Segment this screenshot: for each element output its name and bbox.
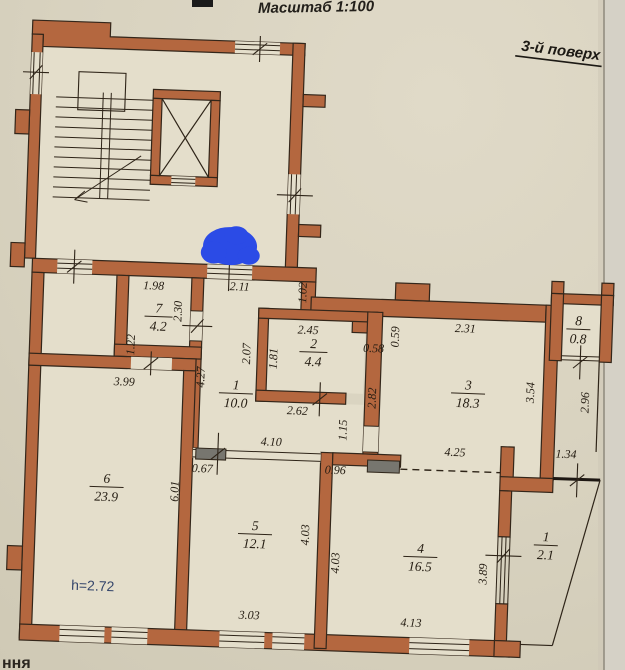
dim-label: 2.96 [577, 392, 592, 413]
svg-text:16.5: 16.5 [408, 559, 432, 575]
window [287, 174, 300, 214]
cropped-bottom-text: ння [2, 655, 31, 670]
window [409, 638, 470, 656]
dim-label: 1.02 [295, 282, 310, 303]
dim-label: 0.58 [363, 341, 384, 356]
svg-text:23.9: 23.9 [94, 489, 118, 505]
dim-label: 3.89 [475, 563, 490, 585]
svg-text:12.1: 12.1 [243, 536, 267, 552]
svg-text:10.0: 10.0 [224, 395, 248, 411]
elevator-door-opening [171, 176, 195, 186]
dim-label: 1.22 [123, 334, 138, 355]
dim-label: 6.01 [167, 481, 182, 502]
door-opening [363, 426, 379, 453]
svg-text:1: 1 [233, 377, 240, 392]
svg-text:1: 1 [542, 529, 549, 544]
dim-label: 2.11 [229, 279, 250, 294]
dim-label: 2.07 [239, 342, 254, 364]
stamp-bar-cropped [192, 0, 213, 7]
svg-text:3: 3 [464, 377, 473, 392]
svg-text:0.8: 0.8 [569, 331, 587, 347]
dim-label: 0.59 [388, 326, 403, 347]
svg-text:4.2: 4.2 [150, 318, 168, 334]
svg-text:4: 4 [417, 541, 425, 556]
dim-label: 1.15 [335, 419, 350, 440]
window [30, 52, 42, 94]
dim-label: 4.27 [193, 365, 208, 387]
dim-label: 2.82 [364, 387, 379, 408]
svg-text:18.3: 18.3 [456, 395, 480, 411]
dim-label: 1.34 [555, 447, 576, 462]
svg-text:4.4: 4.4 [304, 354, 322, 370]
dim-label: 2.31 [455, 321, 476, 336]
vent-duct [367, 460, 399, 473]
svg-text:5: 5 [252, 518, 260, 533]
vent-duct [196, 448, 226, 460]
dim-label: 4.13 [400, 615, 421, 630]
svg-text:6: 6 [103, 471, 111, 486]
floor-plan-drawing: Масштаб 1:100 3-й поверх [0, 0, 625, 670]
dim-label: 4.03 [328, 552, 343, 573]
scale-label: Масштаб 1:100 [258, 0, 375, 17]
ceiling-height-note: h=2.72 [71, 577, 115, 595]
window [272, 633, 305, 650]
dim-label: 4.10 [261, 434, 282, 449]
svg-text:8: 8 [575, 313, 583, 328]
dim-label: 1.98 [143, 278, 164, 293]
dim-label: 2.62 [287, 403, 308, 418]
entry-door-opening [235, 41, 280, 55]
dim-label: 4.25 [444, 445, 465, 460]
dim-label: 4.03 [298, 524, 313, 545]
dim-label: 3.99 [113, 374, 135, 389]
dim-label: 0.96 [325, 463, 346, 478]
dim-label: 1.81 [266, 348, 281, 369]
window [59, 625, 105, 643]
dim-label: 2.30 [170, 301, 185, 322]
floor-plan-page: Масштаб 1:100 3-й поверх [0, 0, 625, 670]
window [219, 631, 265, 649]
window [111, 627, 148, 644]
dim-label: 3.54 [523, 382, 538, 404]
dim-label: 2.45 [297, 323, 318, 338]
svg-text:2: 2 [310, 336, 318, 351]
svg-text:2.1: 2.1 [537, 547, 554, 563]
dim-label: 3.03 [237, 608, 259, 623]
dim-label: 0.67 [192, 461, 214, 476]
